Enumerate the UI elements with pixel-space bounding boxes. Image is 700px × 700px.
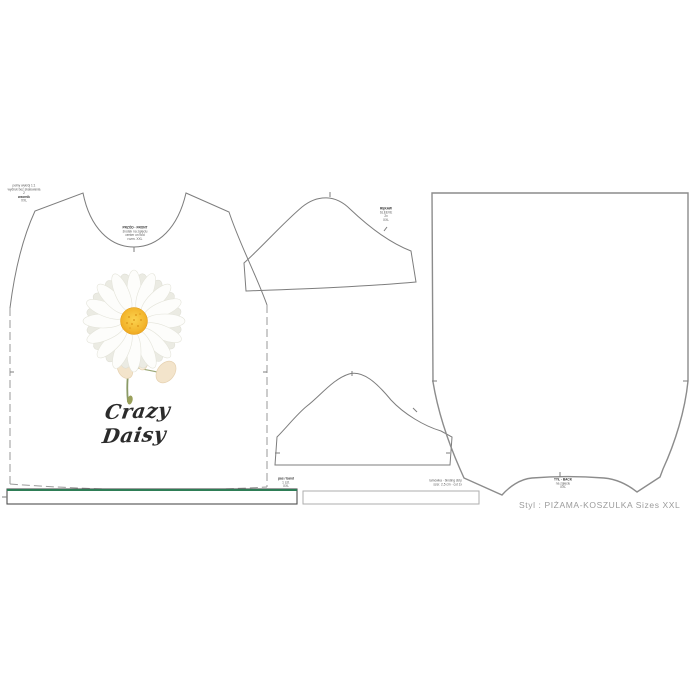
microtext-sleeve-label: RĘKAW SLEEVE 2x XXL — [375, 207, 397, 222]
binding-strip — [303, 491, 479, 504]
notch-tick — [384, 227, 387, 231]
notch-tick — [413, 408, 417, 412]
sleeve-bottom-outline — [275, 373, 452, 465]
microtext-front-label: PRZÓD · FRONT środek na zgięciu center o… — [112, 226, 158, 241]
daisy-illustration — [75, 262, 199, 412]
flower-center — [121, 308, 148, 335]
neckband-strip — [2, 489, 297, 504]
microtext-back-label: TYŁ · BACK na zgięciu XXL — [545, 478, 581, 489]
microtext-corner-note: pełny wykrój 1:1 wydruk bez skalowania 2… — [2, 184, 46, 203]
binding-strip-rect — [303, 491, 479, 504]
fabric-panel-mockup: Crazy Daisy pełny wykrój 1:1 wydruk bez … — [0, 0, 700, 700]
microtext-band-label: pas / band 1 szt. XXL — [273, 477, 299, 488]
neckband-strip-rect — [7, 489, 297, 504]
back-piece-outline — [432, 193, 688, 495]
sleeve-piece-bottom — [275, 371, 452, 465]
script-title: Crazy Daisy — [74, 397, 197, 449]
microtext-binding-label: lamówka · binding strip szer. 2,5 cm · c… — [410, 479, 462, 487]
style-size-label: Styl : PIŻAMA-KOSZULKA Sizes XXL — [519, 500, 680, 510]
back-piece — [432, 193, 688, 495]
